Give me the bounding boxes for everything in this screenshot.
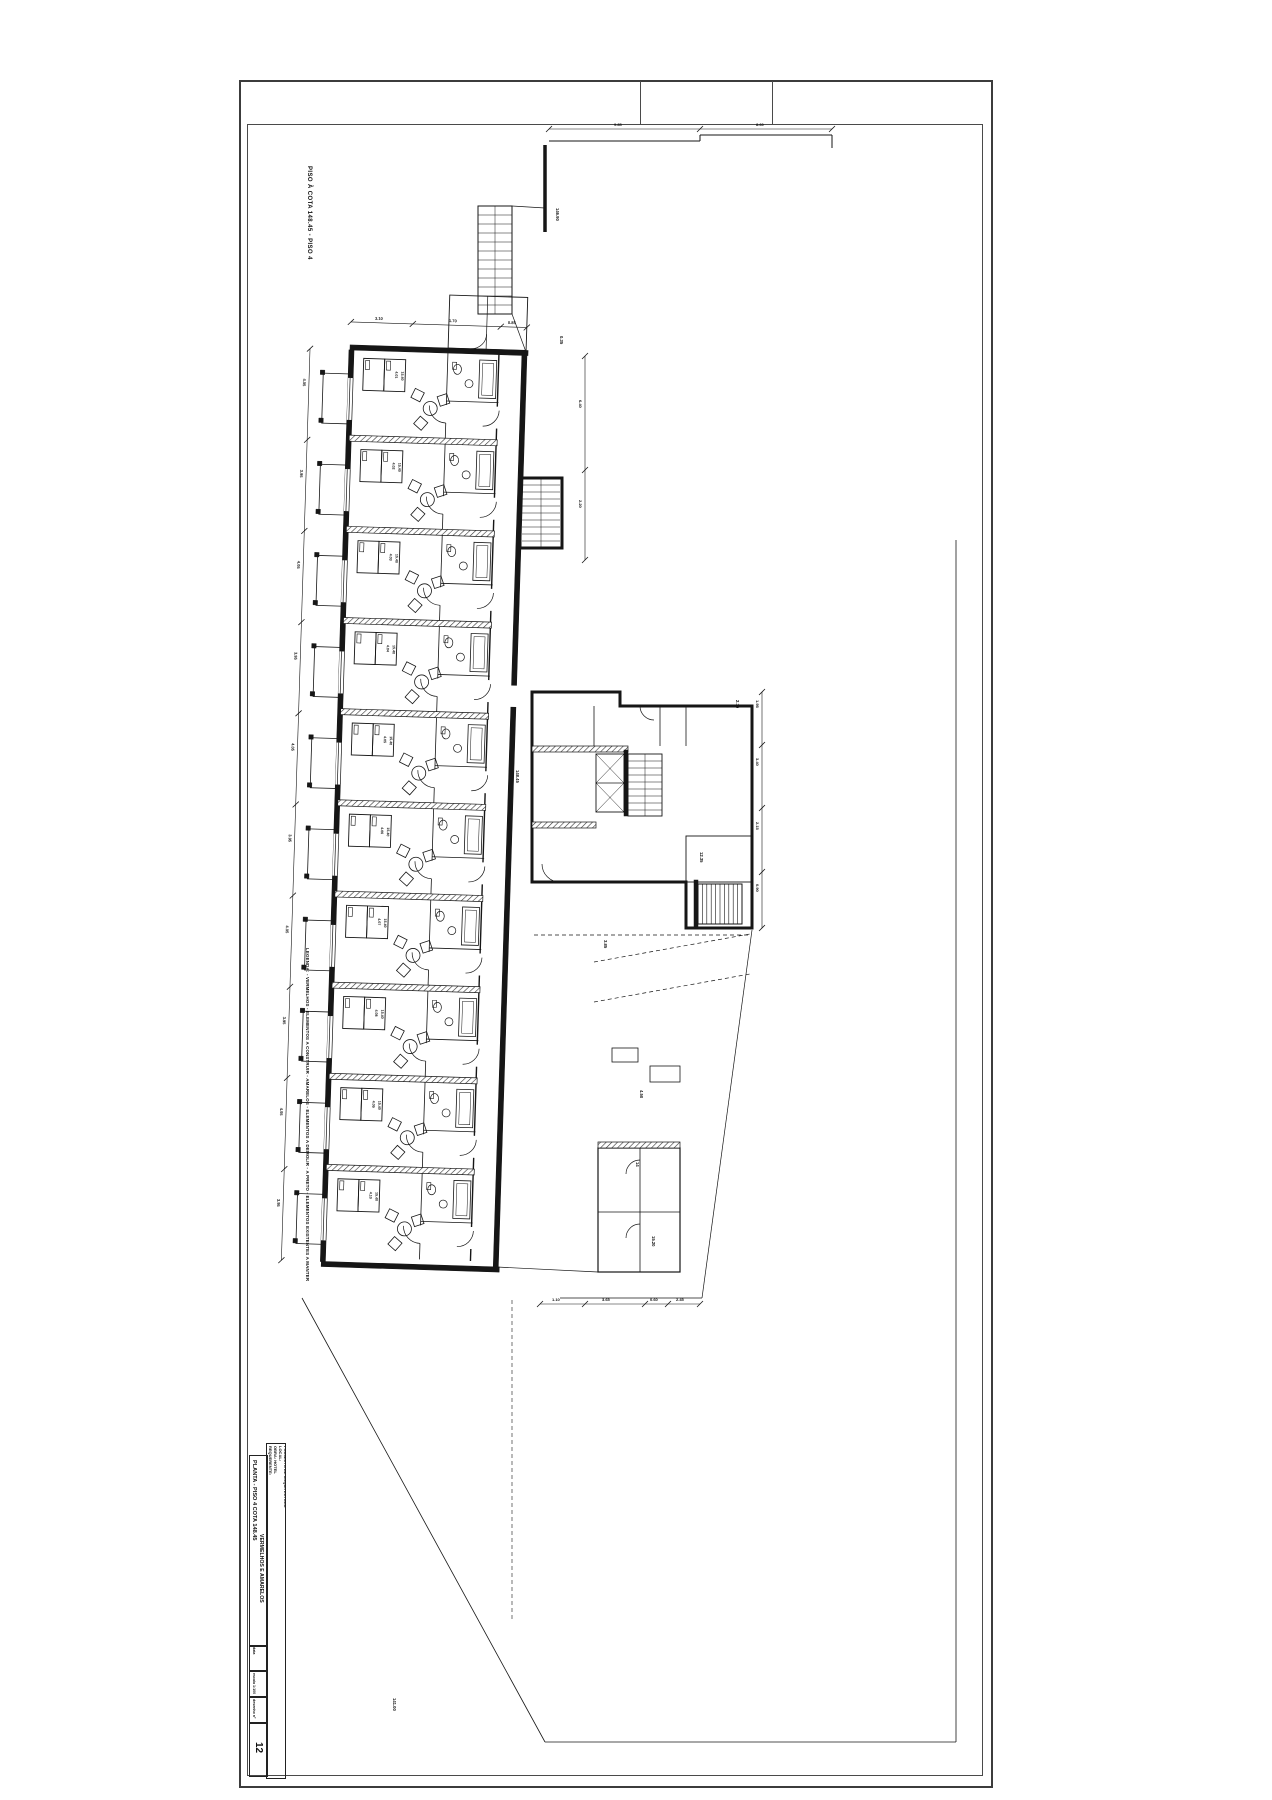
svg-text:15.40: 15.40 bbox=[397, 463, 401, 472]
svg-text:4.03: 4.03 bbox=[388, 554, 392, 561]
svg-text:15.40: 15.40 bbox=[394, 554, 398, 563]
svg-text:3.95: 3.95 bbox=[293, 652, 298, 661]
svg-text:4.04: 4.04 bbox=[386, 645, 390, 652]
svg-text:1.95: 1.95 bbox=[755, 700, 760, 709]
svg-text:4.05: 4.05 bbox=[285, 925, 290, 934]
svg-text:15.40: 15.40 bbox=[400, 372, 404, 381]
svg-text:3.95: 3.95 bbox=[282, 1017, 287, 1026]
hotel-room: 4.0415.40 bbox=[310, 616, 493, 714]
svg-text:4.07: 4.07 bbox=[377, 918, 381, 925]
svg-text:3.65: 3.65 bbox=[602, 1297, 611, 1302]
svg-text:0.35: 0.35 bbox=[559, 336, 564, 345]
svg-text:6.40: 6.40 bbox=[578, 400, 583, 409]
interior-stair bbox=[520, 478, 562, 548]
svg-text:4.01: 4.01 bbox=[394, 371, 398, 378]
svg-text:4.02: 4.02 bbox=[391, 462, 395, 469]
svg-text:15.40: 15.40 bbox=[391, 645, 395, 654]
svg-text:1.10: 1.10 bbox=[552, 1297, 561, 1302]
guest-room-wing: 4.0115.404.054.0215.403.954.0315.404.054… bbox=[274, 290, 531, 1272]
svg-text:15.40: 15.40 bbox=[383, 918, 387, 927]
svg-text:15.40: 15.40 bbox=[374, 1192, 378, 1201]
svg-text:2.10: 2.10 bbox=[735, 700, 740, 709]
hotel-room: 4.0715.40 bbox=[301, 890, 484, 988]
service-annex bbox=[532, 692, 752, 928]
svg-text:4.50: 4.50 bbox=[639, 1090, 644, 1099]
svg-text:146.90: 146.90 bbox=[555, 208, 560, 221]
svg-text:9.85: 9.85 bbox=[614, 122, 623, 127]
svg-text:2.20: 2.20 bbox=[578, 500, 583, 509]
hotel-room: 4.0815.40 bbox=[298, 981, 481, 1079]
svg-text:4.08: 4.08 bbox=[374, 1009, 378, 1016]
site-and-annex: 1.953.402.150.901.103.650.602.456.402.20… bbox=[302, 122, 956, 1742]
svg-text:3.10: 3.10 bbox=[375, 316, 384, 321]
svg-text:3.85: 3.85 bbox=[603, 940, 608, 949]
svg-text:2.45: 2.45 bbox=[676, 1297, 685, 1302]
plan-notes: 148.45146.90141.0015.201412.354.503.852.… bbox=[392, 208, 740, 1711]
svg-text:4.05: 4.05 bbox=[290, 743, 295, 752]
svg-text:4.09: 4.09 bbox=[371, 1101, 375, 1108]
svg-text:12.35: 12.35 bbox=[699, 852, 704, 863]
svg-text:4.06: 4.06 bbox=[380, 827, 384, 834]
terrace-area bbox=[497, 930, 752, 1620]
hotel-room: 4.0115.40 bbox=[318, 349, 501, 441]
svg-text:4.05: 4.05 bbox=[296, 561, 301, 570]
svg-text:4.05: 4.05 bbox=[302, 378, 307, 387]
svg-text:15.20: 15.20 bbox=[651, 1236, 656, 1247]
svg-text:3.95: 3.95 bbox=[276, 1199, 281, 1208]
hotel-room: 4.0215.40 bbox=[315, 434, 498, 532]
svg-text:1.70: 1.70 bbox=[449, 318, 458, 323]
svg-text:15.40: 15.40 bbox=[380, 1010, 384, 1019]
hotel-room: 4.0315.40 bbox=[313, 525, 496, 623]
svg-text:0.60: 0.60 bbox=[650, 1297, 659, 1302]
svg-text:141.00: 141.00 bbox=[392, 1698, 397, 1711]
hotel-room: 4.0915.40 bbox=[295, 1072, 478, 1170]
svg-text:14: 14 bbox=[635, 1162, 640, 1167]
svg-text:15.40: 15.40 bbox=[377, 1101, 381, 1110]
svg-text:8.60: 8.60 bbox=[756, 122, 765, 127]
svg-text:15.40: 15.40 bbox=[389, 736, 393, 745]
hotel-room: 4.0615.40 bbox=[304, 799, 487, 897]
svg-text:4.05: 4.05 bbox=[279, 1108, 284, 1117]
site-boundary bbox=[302, 135, 956, 1742]
svg-text:3.40: 3.40 bbox=[755, 758, 760, 767]
svg-text:3.95: 3.95 bbox=[287, 834, 292, 843]
svg-text:0.85: 0.85 bbox=[508, 320, 517, 325]
svg-text:148.45: 148.45 bbox=[515, 770, 520, 783]
svg-text:4.10: 4.10 bbox=[368, 1192, 372, 1199]
svg-text:2.15: 2.15 bbox=[755, 822, 760, 831]
floor-plan-svg: 1.953.402.150.901.103.650.602.456.402.20… bbox=[0, 0, 1272, 1800]
svg-text:0.90: 0.90 bbox=[755, 884, 760, 893]
svg-text:15.40: 15.40 bbox=[386, 827, 390, 836]
svg-text:4.05: 4.05 bbox=[383, 736, 387, 743]
hotel-room: 4.1015.40 bbox=[293, 1163, 476, 1261]
hotel-room: 4.0515.40 bbox=[307, 708, 490, 806]
svg-text:3.95: 3.95 bbox=[299, 470, 304, 479]
